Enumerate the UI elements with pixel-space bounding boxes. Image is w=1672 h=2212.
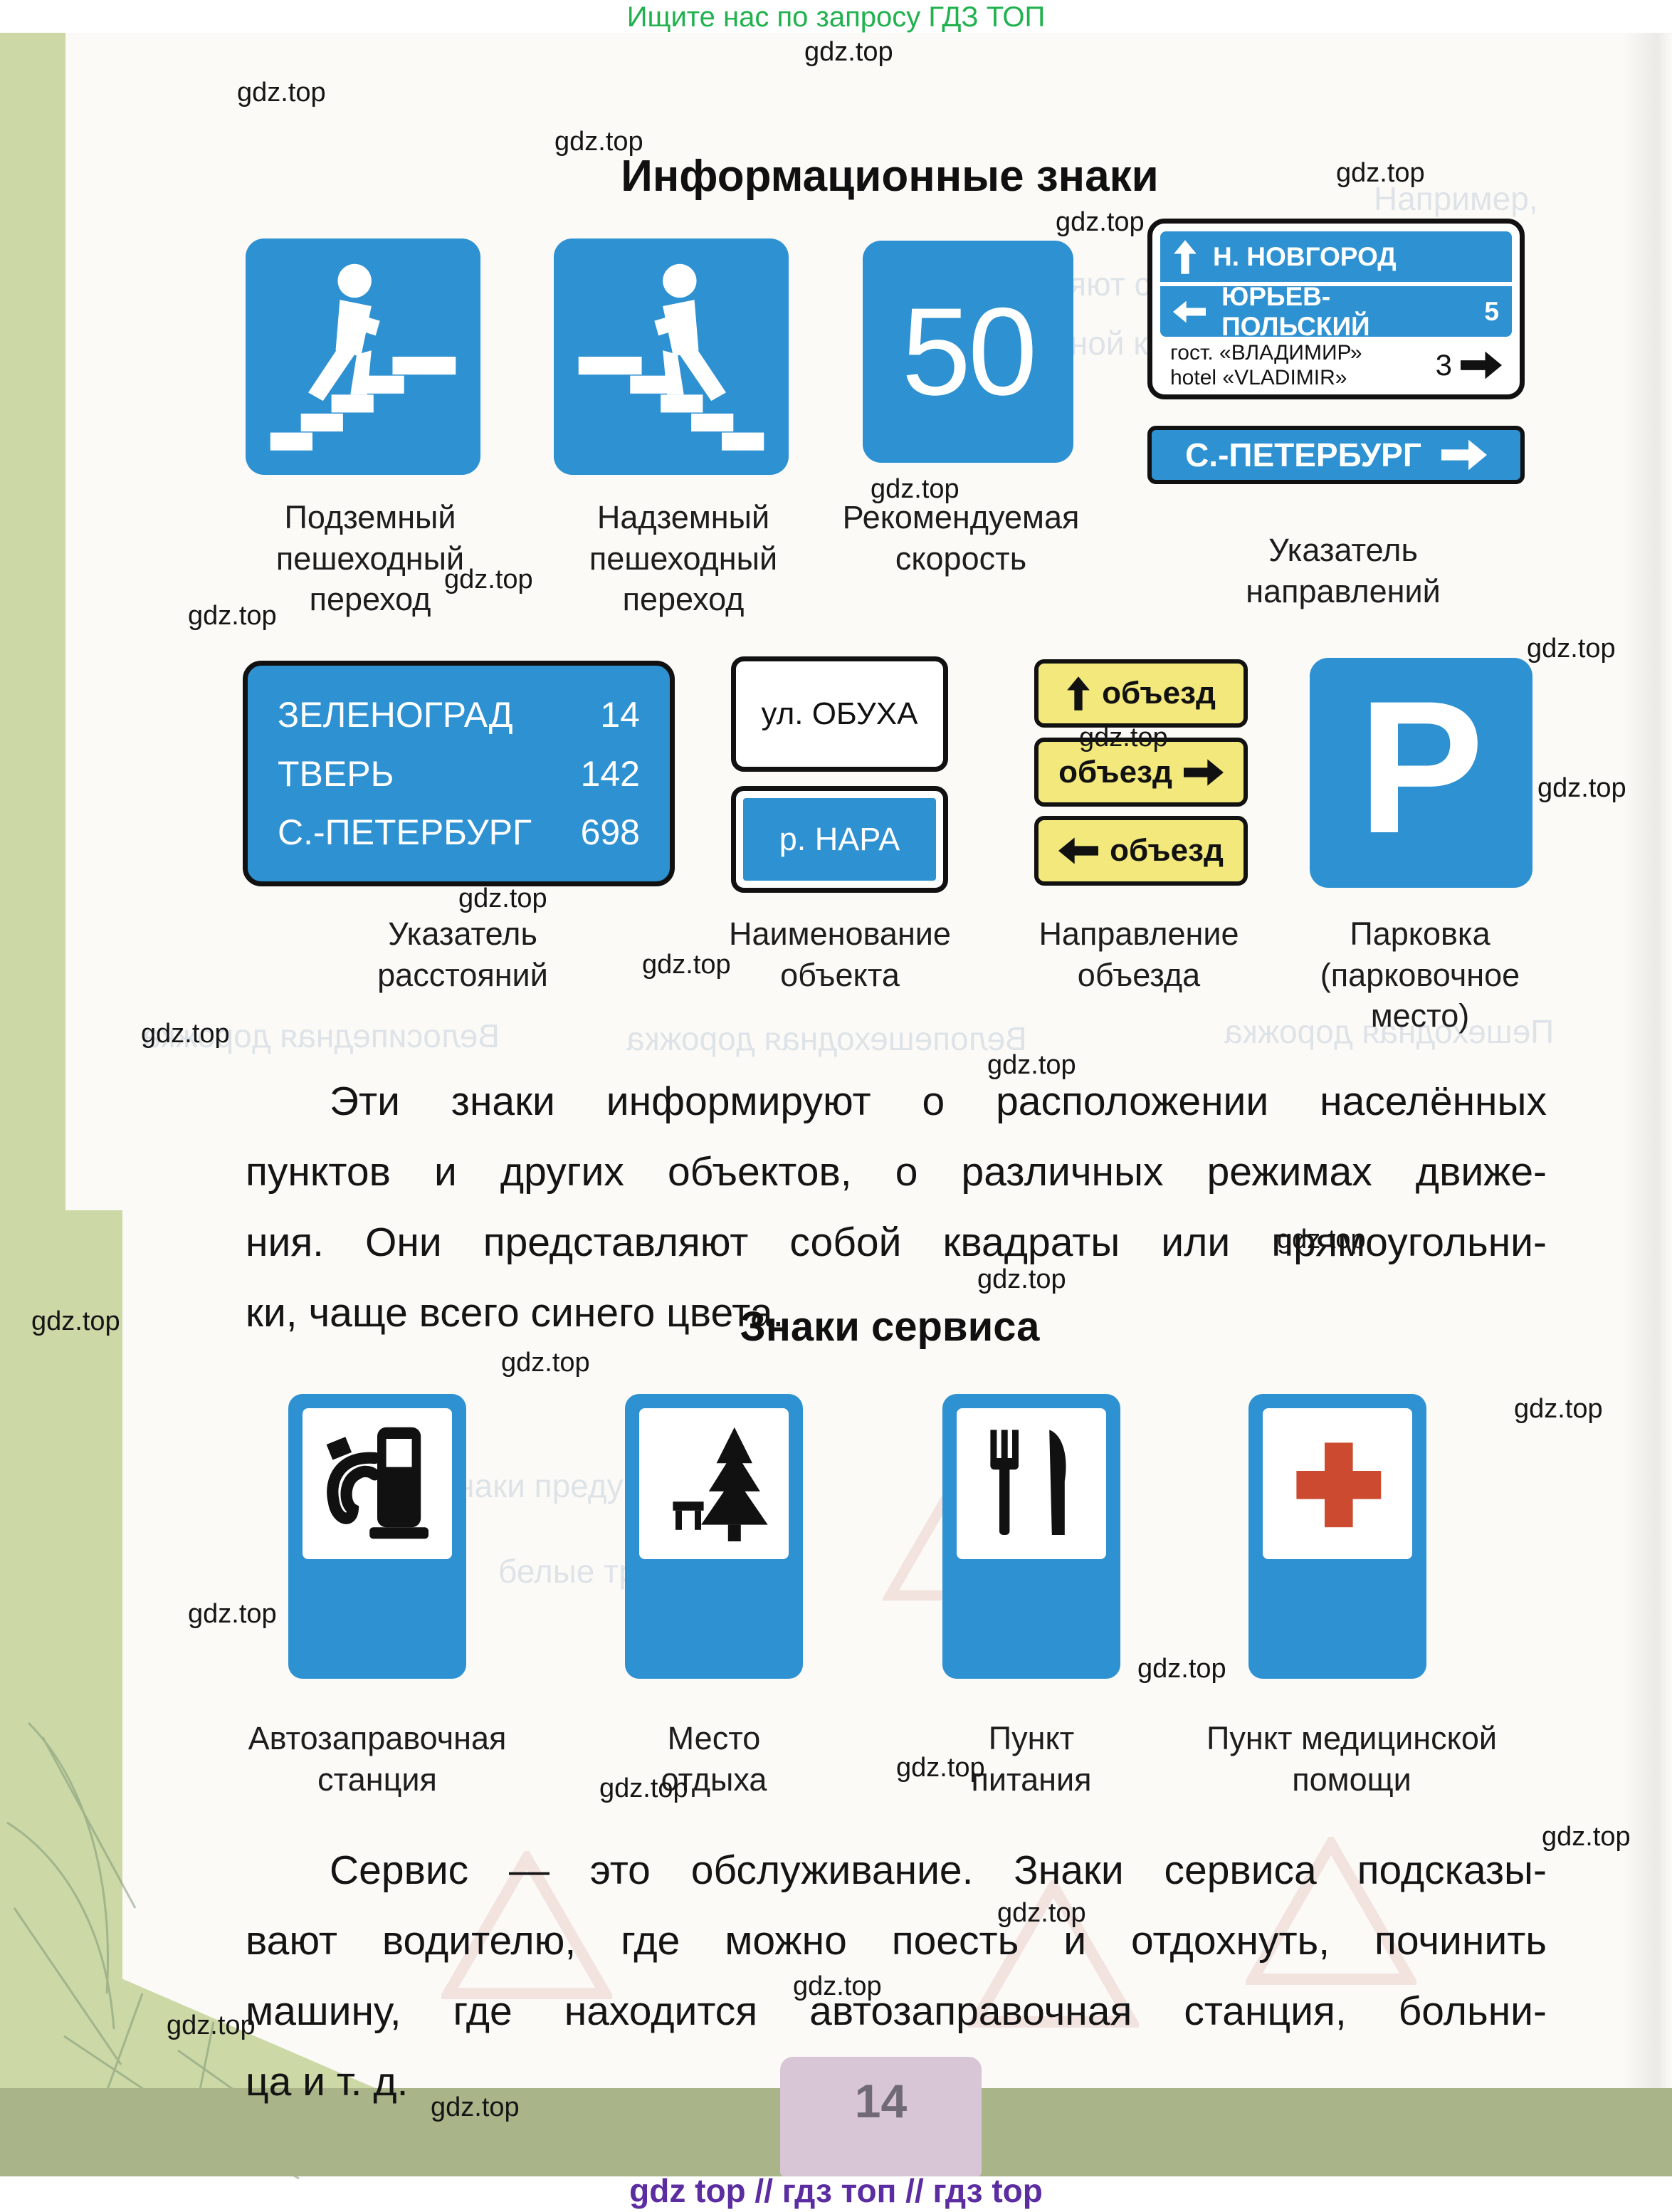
distance-city: ТВЕРЬ <box>278 753 394 795</box>
sign-distance-board: ЗЕЛЕНОГРАД 14 ТВЕРЬ 142 С.-ПЕТЕРБУРГ 698 <box>243 661 675 886</box>
caption-fuel-station: Автозаправочная станция <box>192 1718 562 1800</box>
distance-km: 14 <box>600 694 640 735</box>
sign-medical-aid <box>1248 1394 1426 1679</box>
gdz-watermark: gdz.top <box>1056 207 1145 238</box>
direction-city-label: ЮРЬЕВ-ПОЛЬСКИЙ <box>1221 282 1458 342</box>
paragraph-line: пунктов и других объектов, о различных р… <box>246 1137 1547 1207</box>
section-title-information-signs: Информационные знаки <box>427 151 1352 201</box>
sign-detour-left: объезд <box>1034 816 1248 886</box>
speed-value: 50 <box>902 281 1035 424</box>
distance-row: С.-ПЕТЕРБУРГ 698 <box>278 812 640 853</box>
gdz-watermark: gdz.top <box>554 127 643 157</box>
right-arrow-icon <box>1441 439 1487 471</box>
gdz-watermark: gdz.top <box>1527 634 1616 664</box>
distance-city: С.-ПЕТЕРБУРГ <box>278 812 532 853</box>
promo-banner-text: Ищите нас по запросу ГДЗ ТОП <box>0 1 1672 33</box>
gdz-watermark: gdz.top <box>431 2092 520 2123</box>
gdz-watermark: gdz.top <box>237 78 326 108</box>
left-arrow-icon <box>1058 837 1098 865</box>
pedestrian-down-stairs-icon <box>258 251 468 462</box>
spb-city-label: С.-ПЕТЕРБУРГ <box>1185 436 1421 474</box>
sign-spb-direction: С.-ПЕТЕРБУРГ <box>1147 426 1525 484</box>
street-name-label: ул. ОБУХА <box>762 696 918 732</box>
distance-row: ТВЕРЬ 142 <box>278 753 640 795</box>
pedestrian-up-stairs-icon <box>566 251 777 462</box>
gdz-watermark: gdz.top <box>444 565 533 595</box>
distance-km: 698 <box>581 812 640 853</box>
gdz-watermark: gdz.top <box>1542 1822 1631 1852</box>
caption-medical-aid: Пункт медицинской помощи <box>1152 1718 1551 1800</box>
gdz-watermark: gdz.top <box>1137 1654 1226 1684</box>
caption-recommended-speed: Рекомендуемая скорость <box>787 497 1135 579</box>
sign-street-name: ул. ОБУХА <box>731 656 948 772</box>
gdz-watermark: gdz.top <box>642 950 731 980</box>
gdz-watermark: gdz.top <box>804 37 893 68</box>
direction-row-yuriev: ЮРЬЕВ-ПОЛЬСКИЙ 5 <box>1160 286 1512 337</box>
gdz-watermark: gdz.top <box>1336 158 1425 189</box>
sign-rest-area <box>625 1394 803 1679</box>
gdz-watermark: gdz.top <box>896 1753 985 1783</box>
caption-rest-area: Место отдыха <box>529 1718 899 1800</box>
detour-label: объезд <box>1058 755 1172 790</box>
gdz-watermark: gdz.top <box>188 1599 277 1630</box>
gdz-watermark: gdz.top <box>987 1050 1076 1081</box>
caption-distance-indicator: Указатель расстояний <box>299 913 626 995</box>
paragraph-line: Эти знаки информируют о расположении нас… <box>246 1066 1547 1137</box>
distance-km: 142 <box>581 753 640 795</box>
gdz-watermark: gdz.top <box>977 1264 1066 1295</box>
up-arrow-icon <box>1066 675 1090 712</box>
hotel-distance: 3 <box>1436 348 1452 382</box>
direction-distance: 5 <box>1484 297 1499 327</box>
detour-label: объезд <box>1110 833 1224 869</box>
caption-parking: Парковка (парковочное место) <box>1256 913 1584 1037</box>
service-sign-pictogram-area <box>303 1408 452 1559</box>
service-sign-pictogram-area <box>957 1408 1106 1559</box>
sign-parking: P <box>1310 658 1532 888</box>
sign-fuel-station <box>288 1394 466 1679</box>
sign-underground-crossing <box>246 239 480 475</box>
service-paragraph: Сервис — это обслуживание. Знаки сервиса… <box>246 1835 1547 2117</box>
right-arrow-icon <box>1461 350 1502 380</box>
fork-and-knife-icon <box>967 1420 1095 1548</box>
sign-river-name: р. НАРА <box>731 786 948 893</box>
gdz-watermark: gdz.top <box>997 1898 1086 1929</box>
gdz-watermark: gdz.top <box>1537 773 1626 804</box>
bleedthrough-text: Велопешеходная дорожка <box>626 1019 1027 1058</box>
gdz-watermark: gdz.top <box>1079 723 1168 753</box>
gdz-watermark: gdz.top <box>1277 1225 1366 1255</box>
left-arrow-icon <box>1173 299 1206 325</box>
distance-row: ЗЕЛЕНОГРАД 14 <box>278 694 640 735</box>
footer-watermark-text: gdz top // гдз топ // гдз top <box>0 2171 1672 2210</box>
paragraph-line: вают водителю, где можно поесть и отдохн… <box>246 1906 1547 1976</box>
sign-direction-board: Н. НОВГОРОД ЮРЬЕВ-ПОЛЬСКИЙ 5 гост. «ВЛАД… <box>1147 219 1525 399</box>
service-sign-pictogram-area <box>1263 1408 1412 1559</box>
direction-city-label: Н. НОВГОРОД <box>1213 242 1397 272</box>
direction-board-blue-block: Н. НОВГОРОД ЮРЬЕВ-ПОЛЬСКИЙ 5 <box>1160 231 1512 337</box>
gdz-watermark: gdz.top <box>871 474 959 505</box>
paragraph-line: машину, где находится автозаправочная ст… <box>246 1976 1547 2047</box>
gdz-watermark: gdz.top <box>167 2011 256 2041</box>
sign-detour-up: объезд <box>1034 659 1248 728</box>
gdz-watermark: gdz.top <box>793 1971 882 2002</box>
paragraph-line: Сервис — это обслуживание. Знаки сервиса… <box>246 1835 1547 1906</box>
sign-food-point <box>942 1394 1120 1679</box>
gdz-watermark: gdz.top <box>141 1019 230 1049</box>
river-name-label: р. НАРА <box>779 821 900 858</box>
distance-city: ЗЕЛЕНОГРАД <box>278 694 513 735</box>
gdz-watermark: gdz.top <box>458 884 547 914</box>
sign-recommended-speed: 50 <box>863 241 1073 463</box>
parking-letter: P <box>1358 673 1484 862</box>
red-cross-icon <box>1273 1420 1402 1548</box>
gdz-watermark: gdz.top <box>31 1306 120 1337</box>
right-arrow-icon <box>1184 758 1224 787</box>
caption-direction-indicator: Указатель направлений <box>1169 530 1518 612</box>
detour-label: объезд <box>1102 676 1216 711</box>
textbook-page-scan: 14 Ищите нас по запросу ГДЗ ТОП gdz top … <box>0 0 1672 2212</box>
river-name-plate: р. НАРА <box>743 798 936 881</box>
section-title-service-signs: Знаки сервиса <box>427 1303 1352 1351</box>
fuel-pump-icon <box>313 1420 441 1548</box>
gdz-watermark: gdz.top <box>188 601 277 631</box>
gdz-watermark: gdz.top <box>1514 1394 1603 1425</box>
sign-overground-crossing <box>554 239 789 475</box>
gdz-watermark: gdz.top <box>501 1348 590 1378</box>
hotel-name-en: hotel «VLADIMIR» <box>1170 365 1362 390</box>
service-sign-pictogram-area <box>639 1408 789 1559</box>
up-arrow-icon <box>1173 239 1197 275</box>
page-edge-shadow <box>1622 33 1672 2088</box>
gdz-watermark: gdz.top <box>599 1773 688 1804</box>
caption-detour-direction: Направление объезда <box>975 913 1303 995</box>
direction-row-novgorod: Н. НОВГОРОД <box>1160 231 1512 282</box>
direction-row-hotel: гост. «ВЛАДИМИР» hotel «VLADIMIR» 3 <box>1160 337 1512 394</box>
hotel-name-ru: гост. «ВЛАДИМИР» <box>1170 340 1362 365</box>
tree-and-bench-icon <box>650 1420 778 1548</box>
